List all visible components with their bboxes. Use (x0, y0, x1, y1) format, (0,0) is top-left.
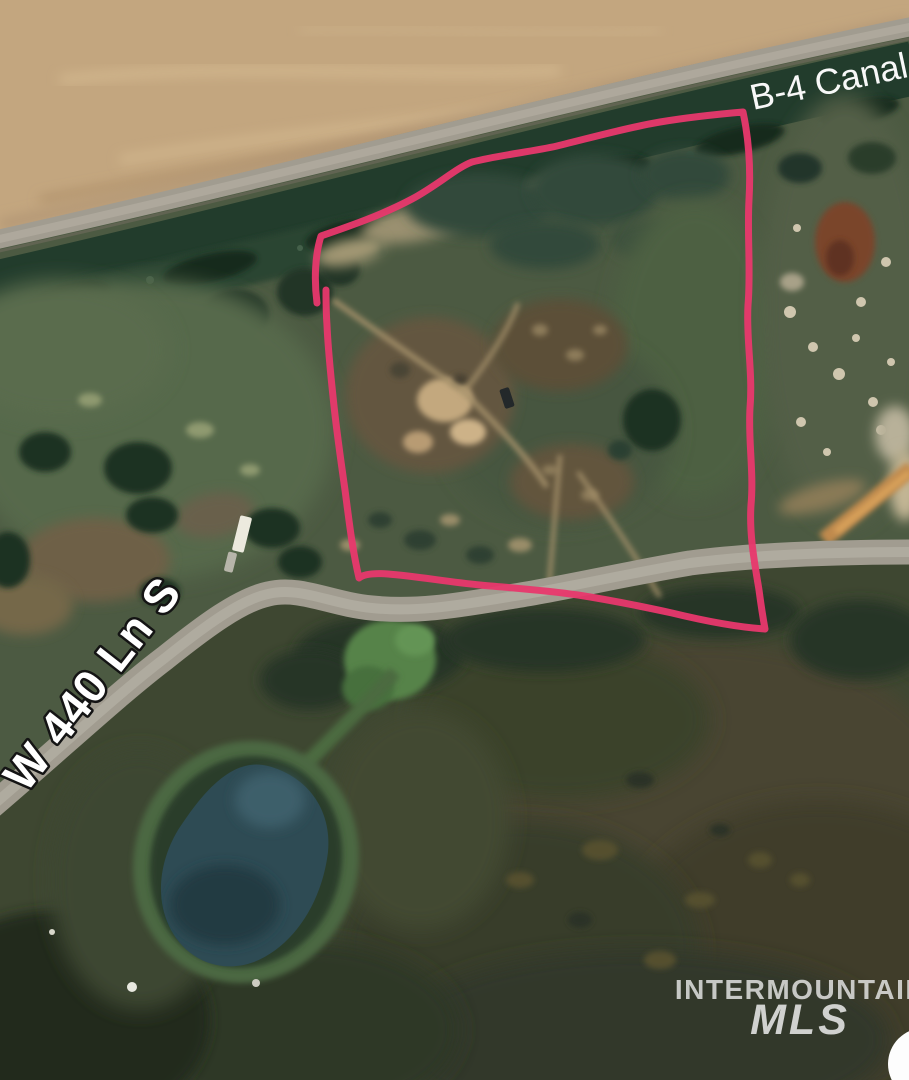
watermark-line2: MLS (750, 996, 850, 1044)
mls-listing-photo: B-4 Canal W 440 Ln S INTERMOUNTAIN MLS (0, 0, 909, 1080)
lone-tree (623, 389, 681, 451)
satellite-map: B-4 Canal W 440 Ln S INTERMOUNTAIN MLS (0, 0, 909, 1080)
